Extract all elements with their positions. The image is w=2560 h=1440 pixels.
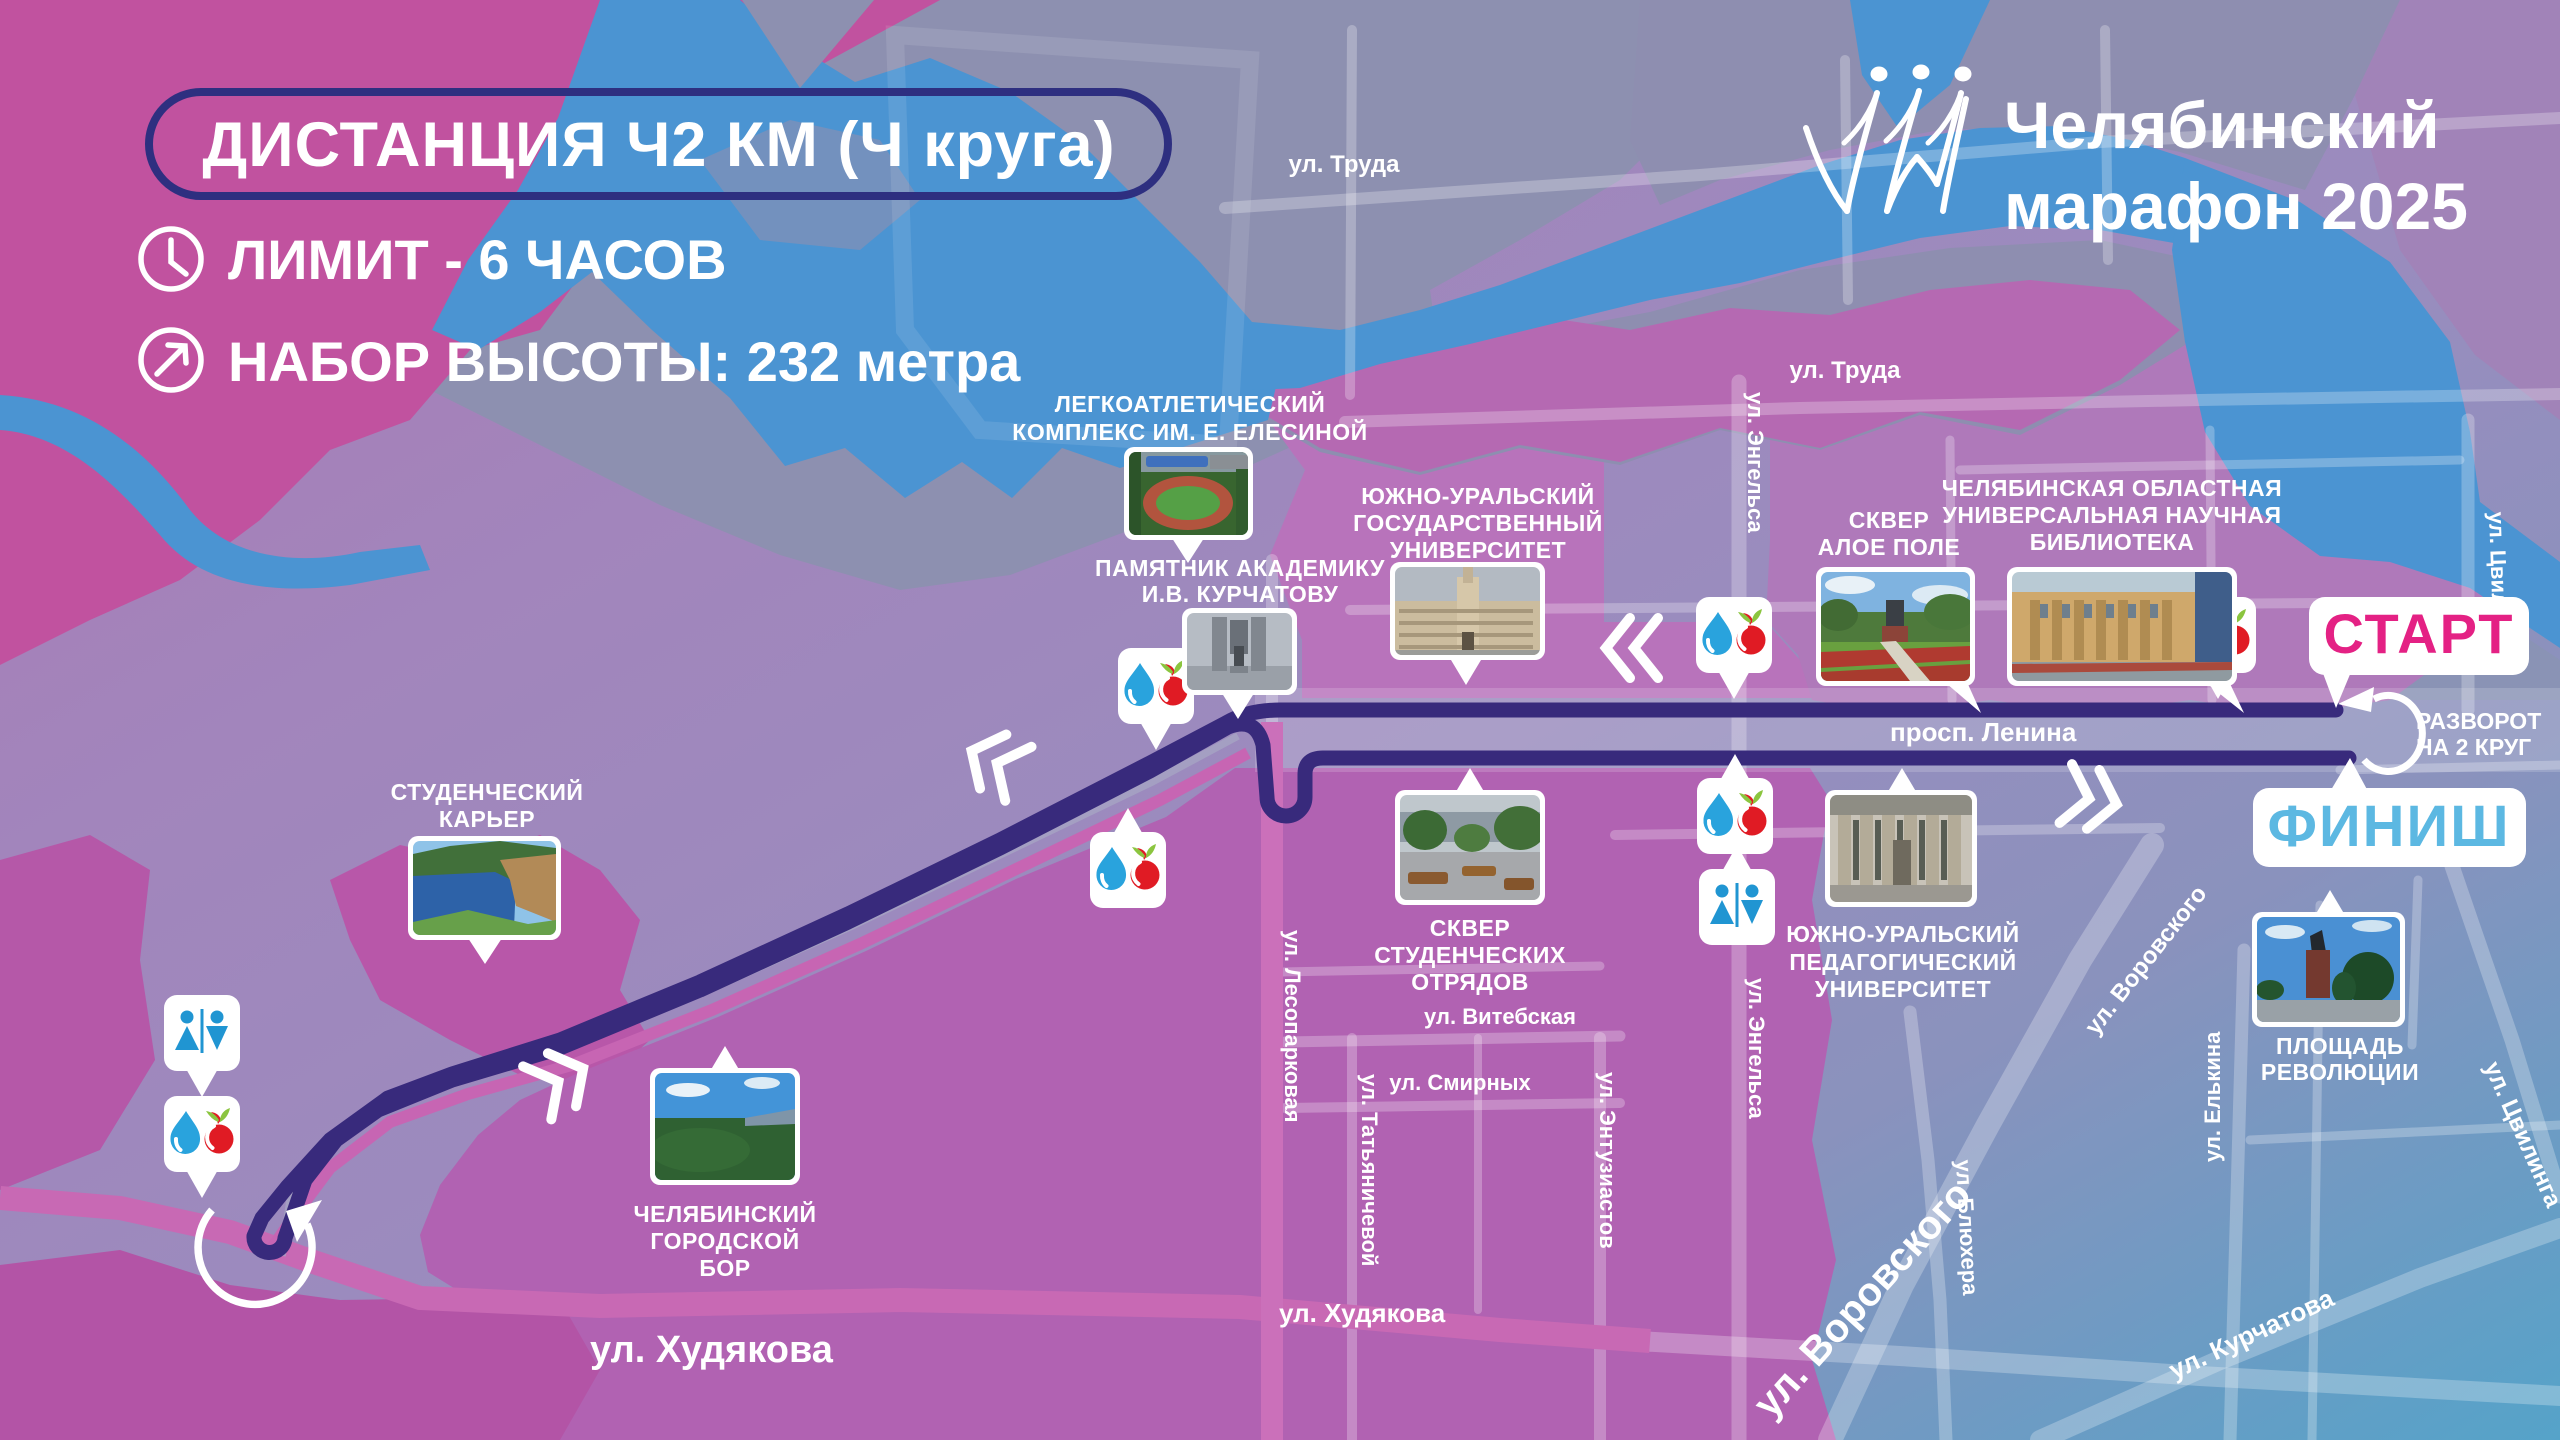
- svg-text:ул. Витебская: ул. Витебская: [1424, 1004, 1576, 1029]
- svg-text:ЧЕЛЯБИНСКИЙ: ЧЕЛЯБИНСКИЙ: [633, 1200, 816, 1227]
- svg-text:АЛОЕ ПОЛЕ: АЛОЕ ПОЛЕ: [1818, 534, 1960, 560]
- svg-text:ул. Энгельса: ул. Энгельса: [1743, 392, 1768, 533]
- svg-text:ул. Труда: ул. Труда: [1789, 357, 1901, 384]
- svg-text:ЮЖНО-УРАЛЬСКИЙ: ЮЖНО-УРАЛЬСКИЙ: [1786, 920, 2019, 947]
- svg-text:КОМПЛЕКС ИМ. Е. ЕЛЕСИНОЙ: КОМПЛЕКС ИМ. Е. ЕЛЕСИНОЙ: [1012, 418, 1367, 445]
- svg-text:БИБЛИОТЕКА: БИБЛИОТЕКА: [2030, 529, 2195, 555]
- svg-text:ПАМЯТНИК АКАДЕМИКУ: ПАМЯТНИК АКАДЕМИКУ: [1095, 555, 1385, 581]
- svg-text:УНИВЕРСИТЕТ: УНИВЕРСИТЕТ: [1815, 976, 1991, 1002]
- svg-text:СКВЕР: СКВЕР: [1849, 507, 1929, 533]
- svg-text:ЛИМИТ - 6 ЧАСОВ: ЛИМИТ - 6 ЧАСОВ: [228, 228, 727, 291]
- svg-text:ЛЕГКОАТЛЕТИЧЕСКИЙ: ЛЕГКОАТЛЕТИЧЕСКИЙ: [1055, 390, 1326, 417]
- svg-text:СКВЕР: СКВЕР: [1430, 915, 1510, 941]
- svg-text:КАРЬЕР: КАРЬЕР: [439, 806, 535, 832]
- svg-text:ул. Энгельса: ул. Энгельса: [1744, 978, 1769, 1119]
- svg-text:ул. Худякова: ул. Худякова: [590, 1329, 834, 1371]
- svg-text:ул. Энтузиастов: ул. Энтузиастов: [1595, 1072, 1620, 1249]
- svg-text:УНИВЕРСАЛЬНАЯ НАУЧНАЯ: УНИВЕРСАЛЬНАЯ НАУЧНАЯ: [1943, 502, 2282, 528]
- svg-text:ул. Татьяничевой: ул. Татьяничевой: [1357, 1074, 1382, 1266]
- svg-text:ДИСТАНЦИЯ Ч2 КМ (Ч круга): ДИСТАНЦИЯ Ч2 КМ (Ч круга): [202, 110, 1115, 180]
- svg-text:ул. Лесопарковая: ул. Лесопарковая: [1280, 930, 1305, 1123]
- svg-text:Челябинский: Челябинский: [2004, 88, 2440, 162]
- svg-text:РЕВОЛЮЦИИ: РЕВОЛЮЦИИ: [2261, 1059, 2419, 1085]
- svg-text:СТУДЕНЧЕСКИЙ: СТУДЕНЧЕСКИЙ: [391, 778, 584, 805]
- svg-text:УНИВЕРСИТЕТ: УНИВЕРСИТЕТ: [1390, 537, 1566, 563]
- svg-text:ПЕДАГОГИЧЕСКИЙ: ПЕДАГОГИЧЕСКИЙ: [1789, 948, 2016, 975]
- svg-text:И.В. КУРЧАТОВУ: И.В. КУРЧАТОВУ: [1142, 581, 1339, 607]
- svg-text:ЮЖНО-УРАЛЬСКИЙ: ЮЖНО-УРАЛЬСКИЙ: [1361, 482, 1594, 509]
- svg-text:ул. Смирных: ул. Смирных: [1389, 1070, 1531, 1095]
- svg-text:ГОСУДАРСТВЕННЫЙ: ГОСУДАРСТВЕННЫЙ: [1353, 509, 1603, 536]
- svg-text:СТУДЕНЧЕСКИХ: СТУДЕНЧЕСКИХ: [1374, 942, 1566, 968]
- svg-text:марафон 2025: марафон 2025: [2004, 169, 2468, 243]
- svg-text:ул. Труда: ул. Труда: [1288, 151, 1400, 178]
- svg-text:СТАРТ: СТАРТ: [2324, 602, 2515, 665]
- svg-text:ОТРЯДОВ: ОТРЯДОВ: [1411, 969, 1529, 995]
- svg-text:БОР: БОР: [699, 1255, 750, 1281]
- svg-text:НАБОР ВЫСОТЫ: 232 метра: НАБОР ВЫСОТЫ: 232 метра: [228, 330, 1021, 393]
- svg-text:ул. Худякова: ул. Худякова: [1279, 1298, 1446, 1328]
- svg-text:ЧЕЛЯБИНСКАЯ ОБЛАСТНАЯ: ЧЕЛЯБИНСКАЯ ОБЛАСТНАЯ: [1942, 475, 2282, 501]
- svg-text:ФИНИШ: ФИНИШ: [2267, 794, 2510, 859]
- svg-text:ПЛОЩАДЬ: ПЛОЩАДЬ: [2276, 1033, 2404, 1059]
- svg-text:РАЗВОРОТ: РАЗВОРОТ: [2416, 708, 2541, 734]
- svg-text:ГОРОДСКОЙ: ГОРОДСКОЙ: [650, 1227, 799, 1254]
- svg-text:ул. Елькина: ул. Елькина: [2200, 1031, 2225, 1162]
- svg-text:просп. Ленина: просп. Ленина: [1890, 717, 2077, 747]
- svg-text:НА 2 КРУГ: НА 2 КРУГ: [2416, 734, 2531, 760]
